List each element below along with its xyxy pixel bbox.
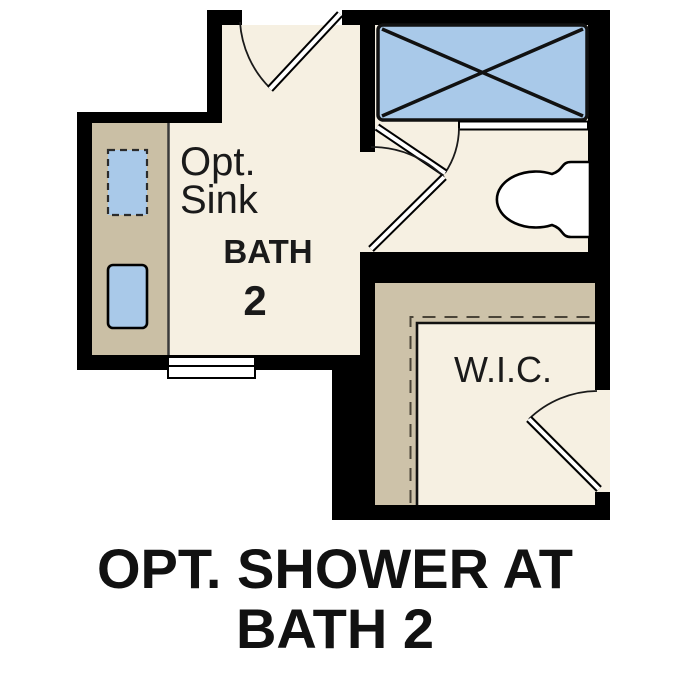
bath2-label-line2: 2	[243, 277, 266, 324]
wall-wic-bottom	[332, 505, 610, 520]
sink	[108, 265, 147, 328]
caption: OPT. SHOWER AT BATH 2	[97, 537, 573, 660]
floor-plan: Opt. Sink BATH 2 W.I.C. OPT. SHOWER AT B…	[0, 0, 687, 687]
optional-sink	[108, 150, 147, 215]
wall-entry-nook-left	[207, 10, 222, 123]
shower-glass-panel	[459, 122, 588, 130]
shower	[378, 25, 588, 130]
cased-opening	[168, 357, 255, 378]
wall-left	[77, 112, 92, 370]
opt-sink-label-line2: Sink	[180, 178, 259, 222]
wall-bath-shower-divider	[360, 25, 375, 152]
bath2-label-line1: BATH	[223, 233, 312, 270]
bath2-doorway-gap	[360, 152, 375, 252]
floor-plan-drawing: Opt. Sink BATH 2 W.I.C. OPT. SHOWER AT B…	[0, 0, 687, 687]
wall-shower-room-bottom	[360, 252, 610, 283]
wic-label: W.I.C.	[454, 349, 552, 390]
wall-vanity-top	[77, 112, 222, 123]
caption-line2: BATH 2	[236, 597, 434, 660]
wall-wic-left	[360, 283, 375, 507]
caption-line1: OPT. SHOWER AT	[97, 537, 573, 600]
wall-top-right-segment	[342, 10, 610, 25]
wall-right	[588, 10, 610, 283]
wic-doorway-gap	[595, 390, 610, 492]
cased-opening-lower	[168, 366, 255, 378]
wall-wic-right-upper	[595, 283, 610, 390]
